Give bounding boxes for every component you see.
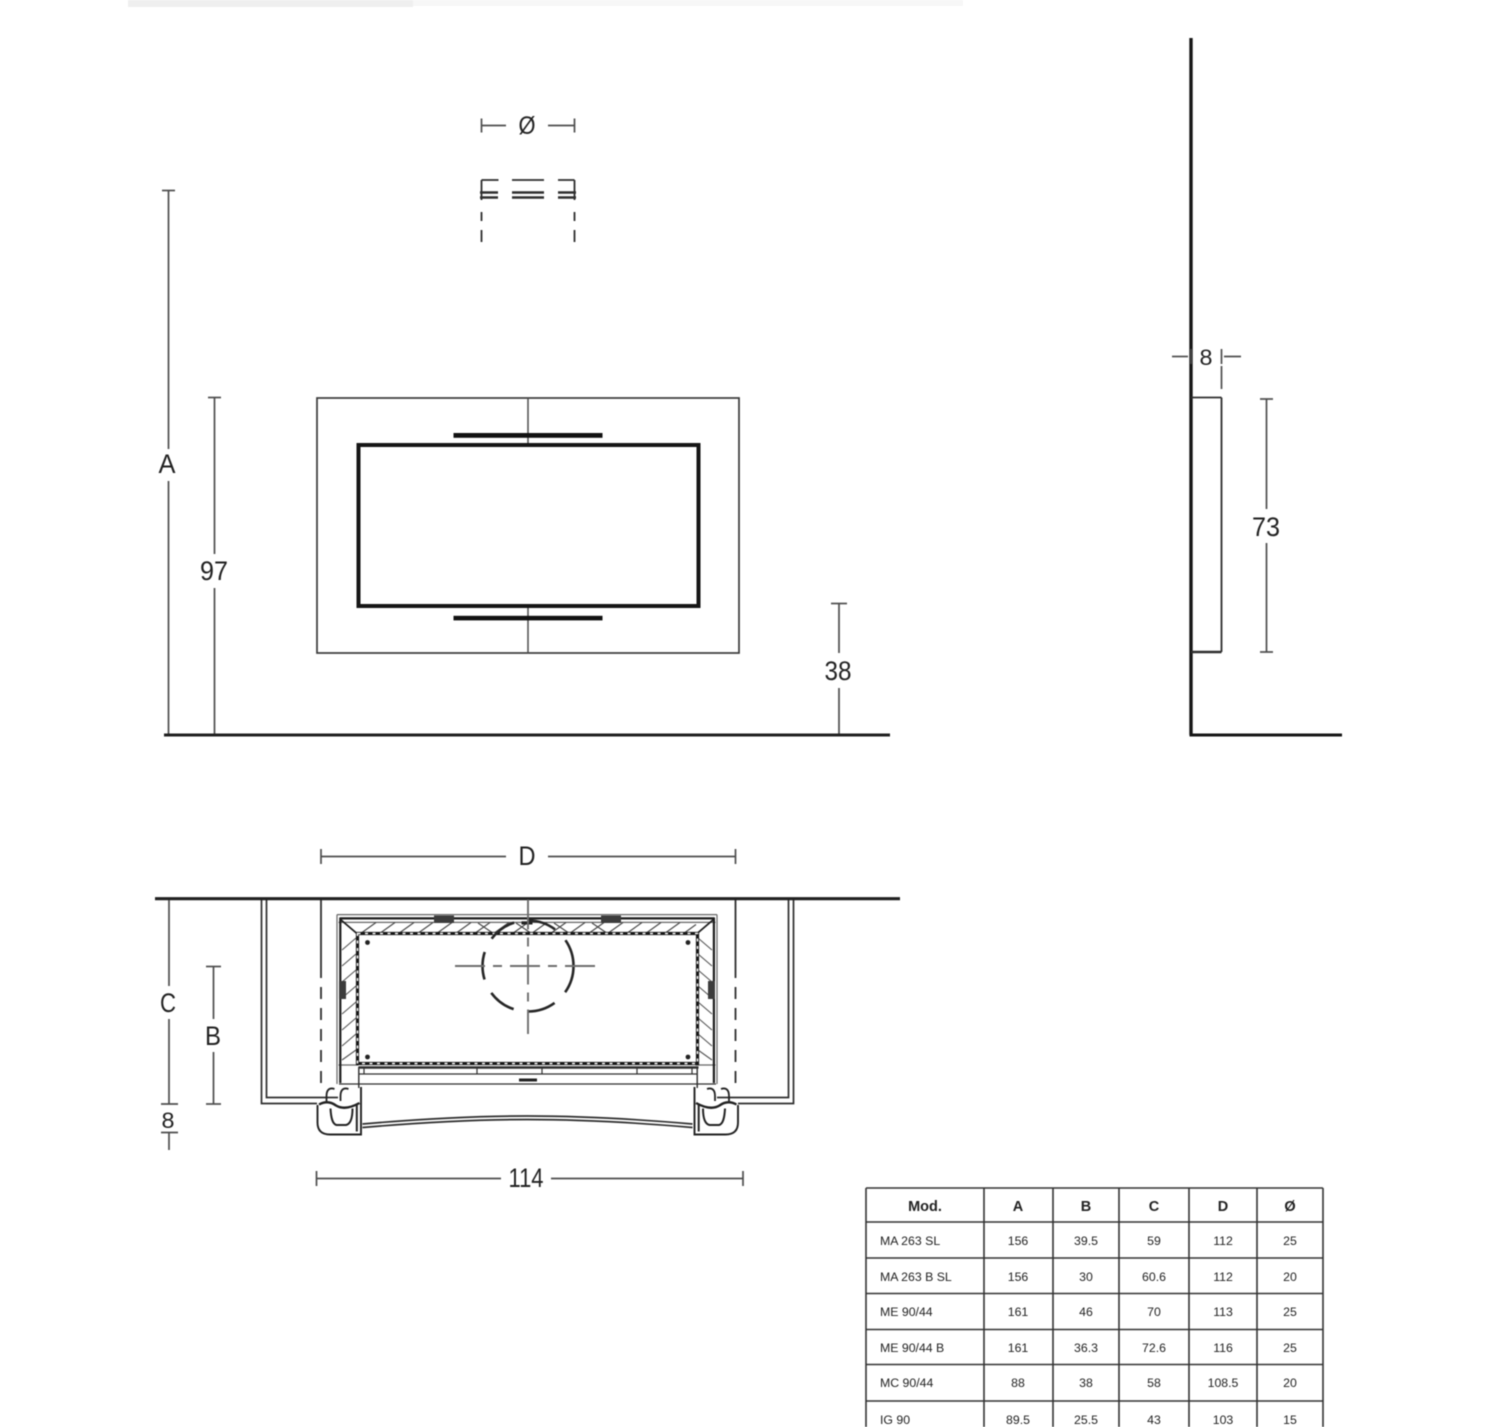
svg-text:161: 161 bbox=[1008, 1341, 1029, 1355]
svg-text:103: 103 bbox=[1213, 1413, 1234, 1427]
svg-text:MA 263 B SL: MA 263 B SL bbox=[880, 1270, 952, 1284]
svg-text:15: 15 bbox=[1283, 1413, 1297, 1427]
svg-text:70: 70 bbox=[1147, 1305, 1161, 1319]
svg-text:25: 25 bbox=[1283, 1234, 1297, 1248]
svg-text:112: 112 bbox=[1213, 1234, 1233, 1248]
svg-text:113: 113 bbox=[1213, 1305, 1233, 1319]
svg-text:39.5: 39.5 bbox=[1074, 1234, 1098, 1248]
svg-text:73: 73 bbox=[1252, 512, 1280, 542]
svg-text:108.5: 108.5 bbox=[1208, 1376, 1239, 1390]
svg-text:88: 88 bbox=[1011, 1376, 1025, 1390]
svg-text:ME 90/44 B: ME 90/44 B bbox=[880, 1341, 944, 1355]
svg-text:Ø: Ø bbox=[519, 112, 536, 140]
svg-text:36.3: 36.3 bbox=[1074, 1341, 1098, 1355]
svg-text:46: 46 bbox=[1079, 1305, 1093, 1319]
svg-text:114: 114 bbox=[509, 1163, 544, 1193]
svg-text:25: 25 bbox=[1283, 1341, 1297, 1355]
svg-text:43: 43 bbox=[1147, 1413, 1161, 1427]
svg-text:C: C bbox=[1149, 1199, 1160, 1215]
svg-text:25.5: 25.5 bbox=[1074, 1413, 1098, 1427]
svg-text:IG 90: IG 90 bbox=[880, 1413, 910, 1427]
svg-text:38: 38 bbox=[825, 656, 852, 686]
svg-text:D: D bbox=[519, 841, 536, 871]
svg-text:156: 156 bbox=[1008, 1270, 1029, 1284]
svg-text:72.6: 72.6 bbox=[1142, 1341, 1166, 1355]
svg-text:30: 30 bbox=[1079, 1270, 1093, 1284]
svg-text:C: C bbox=[160, 988, 176, 1018]
svg-text:112: 112 bbox=[1213, 1270, 1233, 1284]
svg-text:97: 97 bbox=[200, 556, 228, 586]
svg-text:8: 8 bbox=[1200, 345, 1213, 370]
svg-text:8: 8 bbox=[162, 1108, 175, 1133]
svg-text:38: 38 bbox=[1079, 1376, 1093, 1390]
svg-text:89.5: 89.5 bbox=[1006, 1413, 1030, 1427]
svg-text:58: 58 bbox=[1147, 1376, 1161, 1390]
svg-text:ME 90/44: ME 90/44 bbox=[880, 1305, 933, 1319]
svg-text:161: 161 bbox=[1008, 1305, 1029, 1319]
svg-text:A: A bbox=[1013, 1199, 1024, 1215]
svg-text:Ø: Ø bbox=[1284, 1199, 1295, 1215]
svg-text:MA 263 SL: MA 263 SL bbox=[880, 1234, 940, 1248]
svg-text:A: A bbox=[159, 449, 176, 479]
svg-text:20: 20 bbox=[1283, 1270, 1297, 1284]
svg-text:25: 25 bbox=[1283, 1305, 1297, 1319]
svg-text:116: 116 bbox=[1213, 1341, 1233, 1355]
svg-text:D: D bbox=[1218, 1199, 1228, 1215]
svg-text:Mod.: Mod. bbox=[908, 1199, 942, 1215]
svg-text:156: 156 bbox=[1008, 1234, 1029, 1248]
svg-text:B: B bbox=[1081, 1199, 1091, 1215]
svg-text:B: B bbox=[205, 1021, 221, 1051]
svg-text:MC 90/44: MC 90/44 bbox=[880, 1376, 933, 1390]
svg-text:60.6: 60.6 bbox=[1142, 1270, 1166, 1284]
svg-text:59: 59 bbox=[1147, 1234, 1161, 1248]
svg-text:20: 20 bbox=[1283, 1376, 1297, 1390]
